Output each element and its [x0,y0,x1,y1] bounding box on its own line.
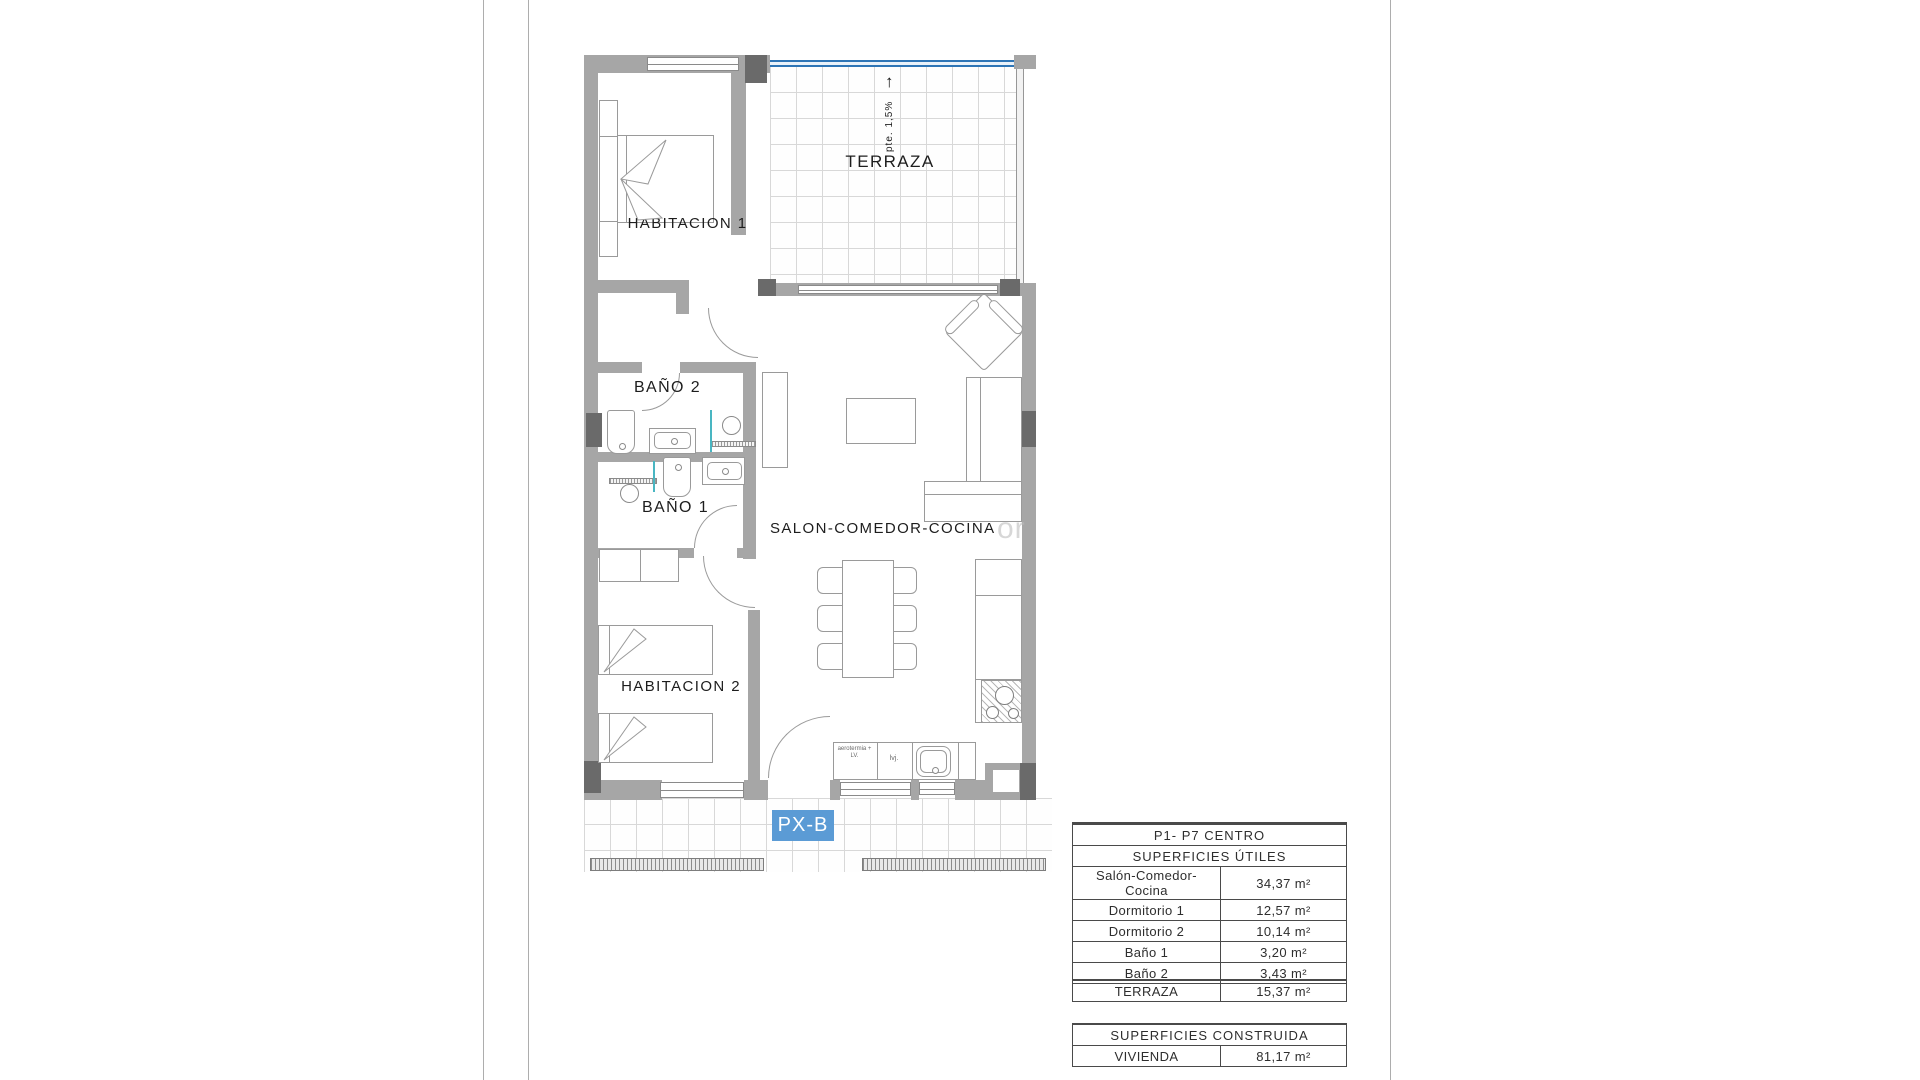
window [919,782,955,795]
window [647,57,739,71]
wall-segment [830,780,840,800]
slope-arrow-icon: ↑ [885,72,894,92]
floorplan-page: aerotermia + LV. lvj. HABITACION 1 TERRA… [0,0,1920,1080]
row-value: 12,57 m² [1221,900,1347,921]
page-divider-line [483,0,484,1080]
shower-head [722,416,741,435]
glass-balustrade [770,60,1016,67]
bed-blanket-fold [600,714,660,764]
shower-bar [609,478,657,484]
table-title: SUPERFICIES CONSTRUIDA [1073,1024,1347,1046]
row-label: Salón-Comedor-Cocina [1073,867,1221,900]
corner-pillar [745,55,767,83]
wall-segment [676,280,689,314]
row-value: 81,17 m² [1221,1046,1347,1067]
dining-chair [817,643,843,670]
tv-unit [762,372,788,468]
bed-blanket-fold [600,626,660,676]
row-label: VIVIENDA [1073,1046,1221,1067]
table-title: P1- P7 CENTRO [1073,824,1347,846]
table-row: Dormitorio 2 10,14 m² [1073,921,1347,942]
wall-segment [584,362,642,373]
corner-pillar [758,279,776,296]
door-arc [703,556,755,608]
dining-chair [891,643,917,670]
row-label: TERRAZA [1073,980,1221,1002]
page-divider-line [528,0,529,1080]
terrace-railing [1016,69,1024,283]
shower-screen [710,410,712,452]
window [840,782,911,796]
row-label: Dormitorio 1 [1073,900,1221,921]
dining-chair [891,567,917,594]
wall-corner-notch [993,770,1019,792]
kitchen-sink [916,746,951,777]
kitchen-unit-label: aerotermia + LV. [834,746,875,760]
door-arc [708,308,758,358]
table-row: VIVIENDA 81,17 m² [1073,1046,1347,1067]
sink-vanity [649,428,696,454]
dining-chair [817,605,843,632]
window [660,782,744,798]
table-row: Baño 1 3,20 m² [1073,942,1347,963]
kitchen-unit-label: lvj. [877,755,911,763]
shower-screen [653,461,655,492]
room-label-salon: SALON-COMEDOR-COCINA [770,520,994,537]
wall-segment [584,280,689,293]
coffee-table [846,398,916,444]
unit-badge: PX-B [772,810,834,841]
terrace-table: TERRAZA 15,37 m² [1072,979,1347,1002]
wardrobe [599,100,618,257]
areas-table: P1- P7 CENTRO SUPERFICIES ÚTILES Salón-C… [1072,822,1347,984]
entrance-door-arc [768,716,830,778]
sofa [966,377,1022,482]
built-table: SUPERFICIES CONSTRUIDA VIVIENDA 81,17 m² [1072,1023,1347,1067]
wall-segment [955,780,987,800]
wall-segment [744,780,768,800]
corner-pillar [586,413,602,447]
corner-pillar [1020,763,1036,800]
watermark: or [997,512,1026,546]
dining-chair [891,605,917,632]
corner-pillar [584,761,601,793]
wall-segment [731,55,746,235]
toilet [607,410,635,454]
bed-blanket-fold [618,136,674,224]
slope-annotation: pte. 1,5% [884,94,895,152]
table-subtitle: SUPERFICIES ÚTILES [1073,846,1347,867]
row-label: Dormitorio 2 [1073,921,1221,942]
page-divider-line [1390,0,1391,1080]
dining-table [842,560,894,678]
row-value: 3,20 m² [1221,942,1347,963]
armchair [948,296,1020,368]
table-row: TERRAZA 15,37 m² [1073,980,1347,1002]
stove-burner [986,706,999,719]
stove-burner [995,686,1014,705]
shower-bar [711,441,756,447]
row-value: 10,14 m² [1221,921,1347,942]
room-label-habitacion2: HABITACION 2 [605,678,757,695]
wardrobe [599,549,679,582]
toilet [663,457,691,497]
table-row: Salón-Comedor-Cocina 34,37 m² [1073,867,1347,900]
row-value: 15,37 m² [1221,980,1347,1002]
dining-chair [817,567,843,594]
wall-segment [1014,55,1036,69]
railing-hatch [862,858,1046,871]
row-value: 34,37 m² [1221,867,1347,900]
sink-vanity [702,457,745,485]
railing-hatch [590,858,764,871]
corner-pillar [1000,279,1020,296]
sliding-door [798,285,998,294]
stove-burner [1008,708,1019,719]
room-label-terraza: TERRAZA [790,152,990,172]
wall-segment [911,780,919,800]
wall-segment [748,610,760,782]
row-label: Baño 1 [1073,942,1221,963]
room-label-bano1: BAÑO 1 [608,499,743,517]
table-row: Dormitorio 1 12,57 m² [1073,900,1347,921]
room-label-bano2: BAÑO 2 [600,379,735,397]
